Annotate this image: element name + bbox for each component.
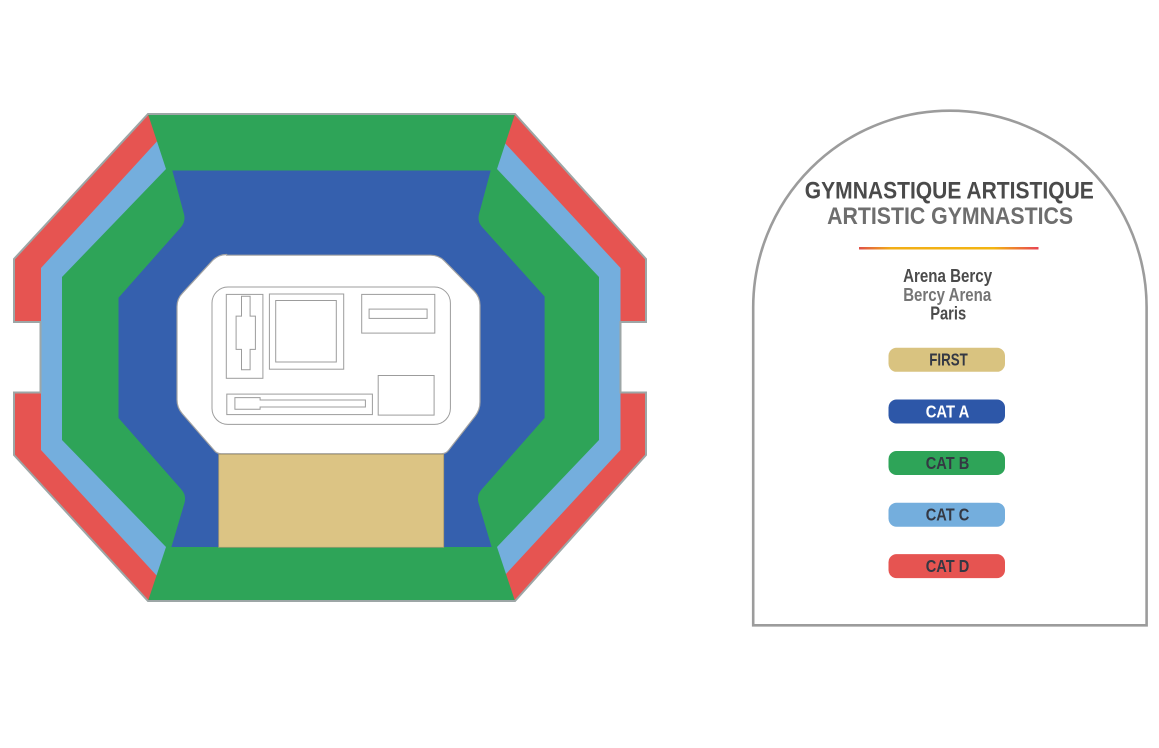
svg-text:Arena Bercy: Arena Bercy [903, 266, 992, 286]
svg-text:GYMNASTIQUE ARTISTIQUE: GYMNASTIQUE ARTISTIQUE [805, 179, 1094, 205]
svg-text:CAT B: CAT B [926, 453, 970, 473]
svg-text:FIRST: FIRST [929, 350, 968, 370]
svg-text:CAT C: CAT C [926, 505, 970, 525]
svg-text:Bercy Arena: Bercy Arena [903, 285, 992, 305]
svg-text:CAT A: CAT A [926, 401, 970, 421]
svg-text:Paris: Paris [930, 303, 966, 323]
svg-text:ARTISTIC GYMNASTICS: ARTISTIC GYMNASTICS [827, 203, 1073, 230]
svg-text:CAT D: CAT D [926, 556, 970, 576]
